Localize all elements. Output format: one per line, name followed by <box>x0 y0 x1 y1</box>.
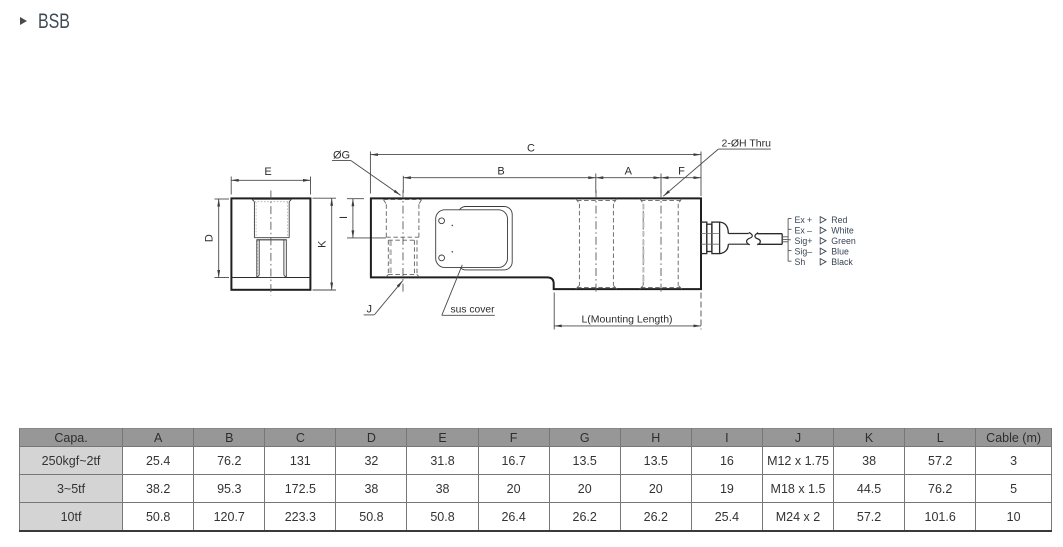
svg-text:Sig–: Sig– <box>795 246 813 256</box>
svg-text:E: E <box>264 166 271 178</box>
svg-text:B: B <box>497 166 504 178</box>
svg-text:+: + <box>807 215 812 225</box>
svg-text:A: A <box>625 166 633 178</box>
svg-text:Sh: Sh <box>795 257 806 267</box>
svg-text:C: C <box>527 143 535 155</box>
svg-text:L(Mounting Length): L(Mounting Length) <box>581 314 672 326</box>
svg-text:White: White <box>831 225 854 235</box>
svg-text:I: I <box>338 216 350 219</box>
svg-text:Ex: Ex <box>795 225 806 235</box>
svg-text:sus cover: sus cover <box>451 305 496 316</box>
svg-text:Green: Green <box>831 236 856 246</box>
svg-text:K: K <box>317 240 329 248</box>
svg-text:–: – <box>807 225 812 235</box>
svg-text:Ex: Ex <box>795 215 806 225</box>
svg-text:Red: Red <box>831 215 847 225</box>
svg-text:Sig+: Sig+ <box>795 236 813 246</box>
svg-text:F: F <box>678 166 685 178</box>
svg-text:Blue: Blue <box>831 246 849 256</box>
svg-text:Black: Black <box>831 257 853 267</box>
svg-text:J: J <box>367 303 373 315</box>
svg-text:D: D <box>204 234 216 242</box>
svg-text:ØG: ØG <box>333 149 350 161</box>
svg-text:2-ØH Thru: 2-ØH Thru <box>722 138 772 150</box>
